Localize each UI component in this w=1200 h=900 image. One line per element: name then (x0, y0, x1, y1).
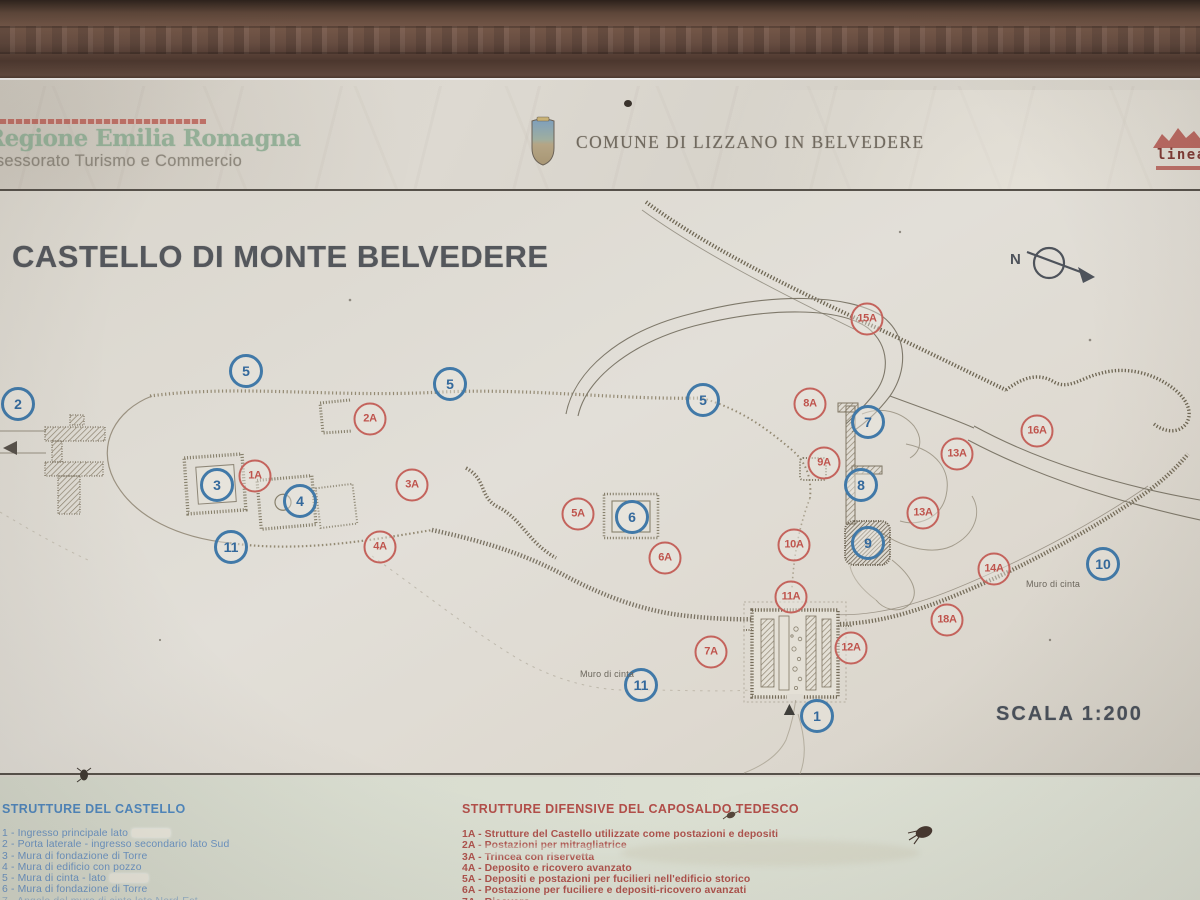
legend-item-4A: 4A - Deposito e ricovero avanzato (462, 863, 799, 874)
legend-item-3: 3 - Mura di fondazione di Torre (2, 851, 229, 862)
linea-mountains-icon (1153, 126, 1200, 148)
wall-label-east: Muro di cinta (1026, 579, 1080, 589)
map-scale-label: SCALA 1:200 (996, 703, 1143, 726)
legend-castle-title: STRUTTURE DEL CASTELLO (2, 802, 229, 816)
region-logo-text: Regione Emilia Romagna (0, 125, 301, 152)
linea-logo-label: linea (1157, 147, 1200, 163)
legend-defensive-title: STRUTTURE DIFENSIVE DEL CAPOSALDO TEDESC… (462, 802, 799, 816)
legend-item-7: 7 - Angolo del muro di cinta lato Nord-E… (2, 896, 229, 900)
legend-item-5A: 5A - Depositi e postazioni per fucilieri… (462, 874, 799, 885)
legend-defensive: STRUTTURE DIFENSIVE DEL CAPOSALDO TEDESC… (462, 802, 799, 900)
comune-label: COMUNE DI LIZZANO IN BELVEDERE (576, 132, 925, 153)
region-subtitle: Assessorato Turismo e Commercio (0, 152, 242, 171)
correction-patch (132, 829, 170, 837)
legend-item-4: 4 - Mura di edificio con pozzo (2, 862, 229, 873)
bug-icon (905, 820, 939, 848)
legend-item-2A: 2A - Postazioni per mitragliatrice (462, 840, 799, 851)
legend-right-items: 1A - Strutture del Castello utilizzate c… (462, 829, 799, 900)
correction-patch (110, 874, 148, 882)
linea-logo-bar (1156, 166, 1200, 170)
dirt-speck (624, 100, 632, 107)
legend-item-2: 2 - Porta laterale - ingresso secondario… (2, 839, 229, 850)
legend-left-items: 1 - Ingresso principale lato2 - Porta la… (2, 828, 229, 900)
compass-north-label: N (1010, 251, 1021, 268)
legend-item-3A: 3A - Trincea con riservetta (462, 852, 799, 863)
region-logo-stripe (0, 119, 206, 124)
legend-item-6: 6 - Mura di fondazione di Torre (2, 884, 229, 895)
legend-item-5: 5 - Mura di cinta - lato (2, 873, 229, 884)
start-point-symbol: ▲ (780, 700, 799, 719)
frame-carving (0, 26, 1200, 54)
bug-on-line-icon (74, 766, 94, 784)
legend-item-6A: 6A - Postazione per fuciliere e depositi… (462, 885, 799, 896)
map-sheet (0, 189, 1200, 775)
fly-icon (722, 808, 740, 822)
wall-label-south: Muro di cinta (580, 669, 634, 679)
comune-crest-icon (529, 116, 557, 168)
page-title: CASTELLO DI MONTE BELVEDERE (12, 239, 549, 275)
legend-item-1A: 1A - Strutture del Castello utilizzate c… (462, 829, 799, 840)
legend-castle: STRUTTURE DEL CASTELLO 1 - Ingresso prin… (2, 802, 229, 900)
legend-item-1: 1 - Ingresso principale lato (2, 828, 229, 839)
